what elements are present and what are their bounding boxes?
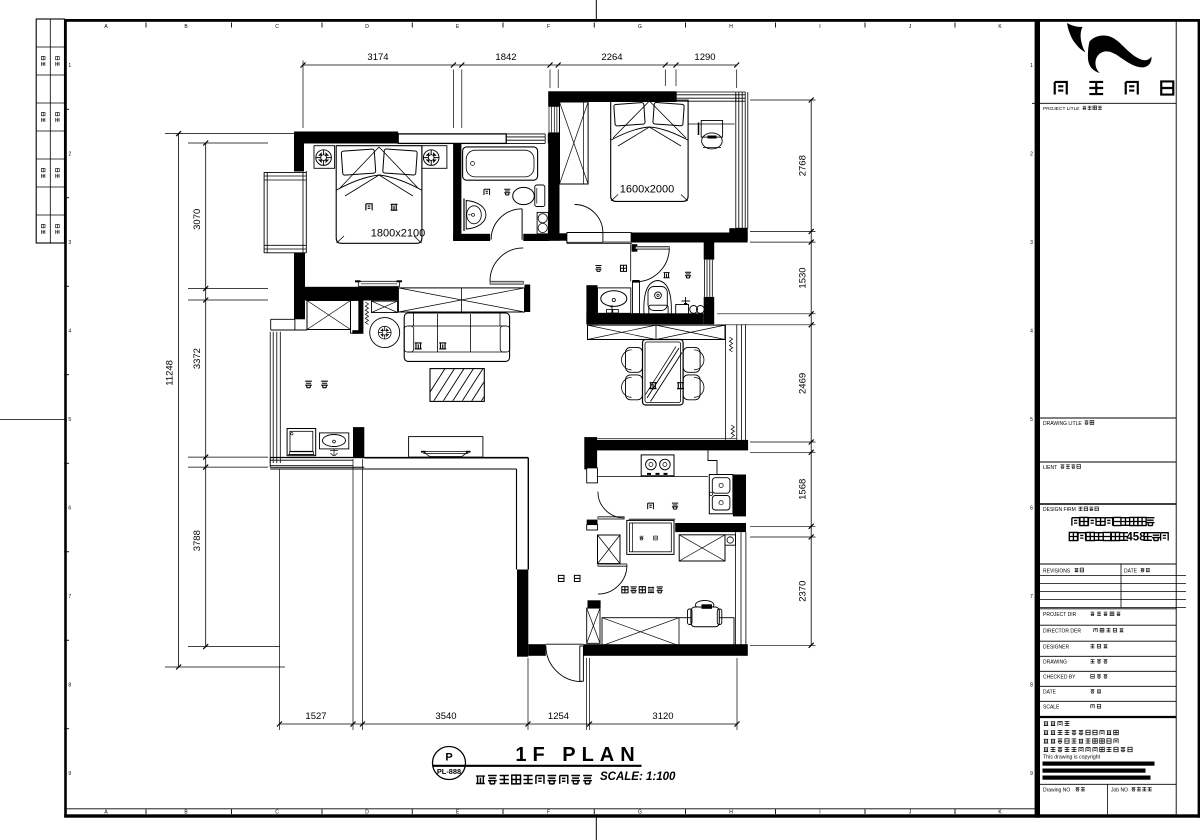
svg-text:3788: 3788 [192,530,203,551]
svg-text:6: 6 [1030,506,1033,512]
svg-text:1F PLAN: 1F PLAN [515,744,640,766]
svg-text:1: 1 [1030,63,1033,69]
svg-text:2: 2 [68,152,71,158]
svg-text:7: 7 [68,594,71,600]
svg-text:8: 8 [68,683,71,689]
svg-text:3: 3 [1030,240,1033,246]
svg-text:2: 2 [1030,152,1033,158]
svg-text:C: C [275,24,279,30]
svg-text:I: I [819,810,820,816]
svg-text:4: 4 [1030,329,1033,335]
svg-text:G: G [638,810,642,816]
svg-text:LIENT: LIENT [1043,465,1057,471]
svg-text:REVISIONS: REVISIONS [1043,568,1071,574]
svg-text:Drawing NO: Drawing NO [1043,788,1070,794]
svg-text:DATE: DATE [1124,568,1138,574]
svg-text:1530: 1530 [798,267,809,288]
svg-text:3: 3 [68,240,71,246]
svg-text:F: F [547,24,550,30]
svg-text:3540: 3540 [435,711,456,722]
svg-text:H: H [729,24,733,30]
svg-text:1800x2100: 1800x2100 [371,228,425,240]
svg-text:1600x2000: 1600x2000 [620,184,674,196]
svg-text:D: D [365,24,369,30]
svg-text:2768: 2768 [798,155,809,176]
svg-text:1: 1 [68,63,71,69]
svg-text:CHECKED BY: CHECKED BY [1043,675,1076,681]
svg-text:2264: 2264 [601,52,622,63]
svg-text:5: 5 [1030,417,1033,423]
svg-text:I: I [819,24,820,30]
svg-text:Job NO: Job NO [1111,788,1128,794]
svg-text:F: F [547,810,550,816]
svg-text:2370: 2370 [798,581,809,602]
svg-text:D: D [365,810,369,816]
svg-text:3070: 3070 [192,209,203,230]
svg-text:DRAWING: DRAWING [1043,660,1067,666]
svg-text:DESIGNER: DESIGNER [1043,644,1070,650]
svg-text:1842: 1842 [495,52,516,63]
svg-text:C: C [275,810,279,816]
svg-text:DESIGN FIRM: DESIGN FIRM [1043,507,1076,513]
svg-text:SCALE: 1:100: SCALE: 1:100 [600,771,676,783]
svg-text:PROJECT LITLE: PROJECT LITLE [1043,106,1079,112]
svg-text:DRAWING LITLE: DRAWING LITLE [1043,421,1082,427]
svg-text:G: G [638,24,642,30]
svg-text:1254: 1254 [548,711,569,722]
svg-text:5: 5 [68,417,71,423]
svg-text:SCALE: SCALE [1043,705,1060,711]
svg-text:DATE: DATE [1043,690,1057,696]
svg-text:3174: 3174 [367,52,388,63]
svg-text:H: H [729,810,733,816]
svg-text:PL-888: PL-888 [437,767,461,776]
svg-text:2469: 2469 [798,373,809,394]
svg-text:4: 4 [68,329,71,335]
svg-text:P: P [445,752,452,764]
svg-text:This drawing is copyright: This drawing is copyright [1043,755,1101,761]
svg-text:1527: 1527 [305,711,326,722]
svg-text:1290: 1290 [694,52,715,63]
svg-text:8: 8 [1030,683,1033,689]
svg-text:458: 458 [1126,532,1146,544]
svg-text:DIRECTOR DER: DIRECTOR DER [1043,628,1081,634]
svg-text:1568: 1568 [798,479,809,500]
svg-text:3120: 3120 [652,711,673,722]
svg-text:9: 9 [1030,771,1033,777]
svg-text:9: 9 [68,771,71,777]
svg-text:11248: 11248 [165,360,176,386]
svg-text:3372: 3372 [192,348,203,369]
svg-text:PROJECT DIR: PROJECT DIR [1043,612,1077,618]
svg-text:6: 6 [68,506,71,512]
svg-text:7: 7 [1030,594,1033,600]
